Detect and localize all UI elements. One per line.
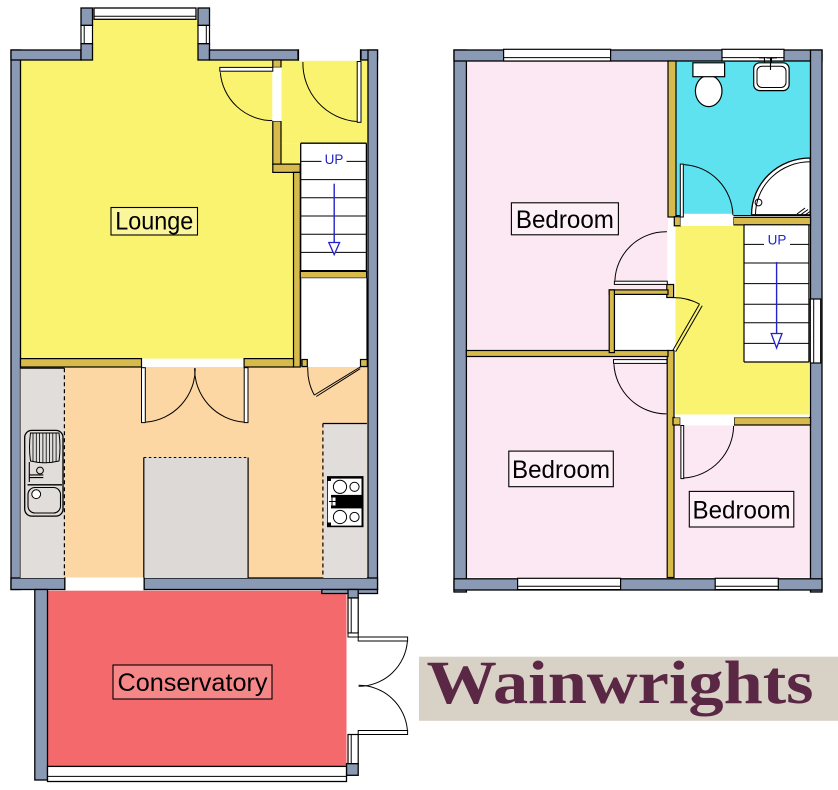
svg-text:Bedroom: Bedroom	[693, 496, 791, 524]
svg-text:Conservatory: Conservatory	[118, 669, 269, 697]
svg-text:Wainwrights: Wainwrights	[427, 650, 814, 717]
svg-text:Bedroom: Bedroom	[512, 456, 610, 484]
svg-text:UP: UP	[325, 152, 344, 167]
svg-text:Bedroom: Bedroom	[516, 206, 614, 234]
svg-text:Lounge: Lounge	[115, 208, 193, 236]
svg-text:UP: UP	[768, 233, 787, 248]
